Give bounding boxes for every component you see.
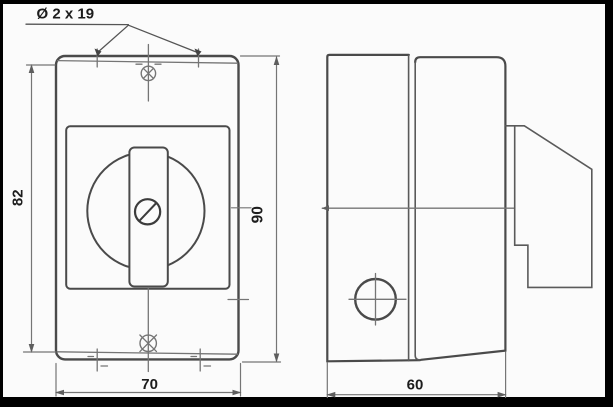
svg-text:60: 60: [407, 377, 424, 394]
svg-text:Ø 2 x 19: Ø 2 x 19: [37, 6, 95, 23]
svg-text:82: 82: [9, 189, 26, 206]
svg-text:70: 70: [141, 376, 158, 393]
svg-text:90: 90: [250, 206, 267, 223]
